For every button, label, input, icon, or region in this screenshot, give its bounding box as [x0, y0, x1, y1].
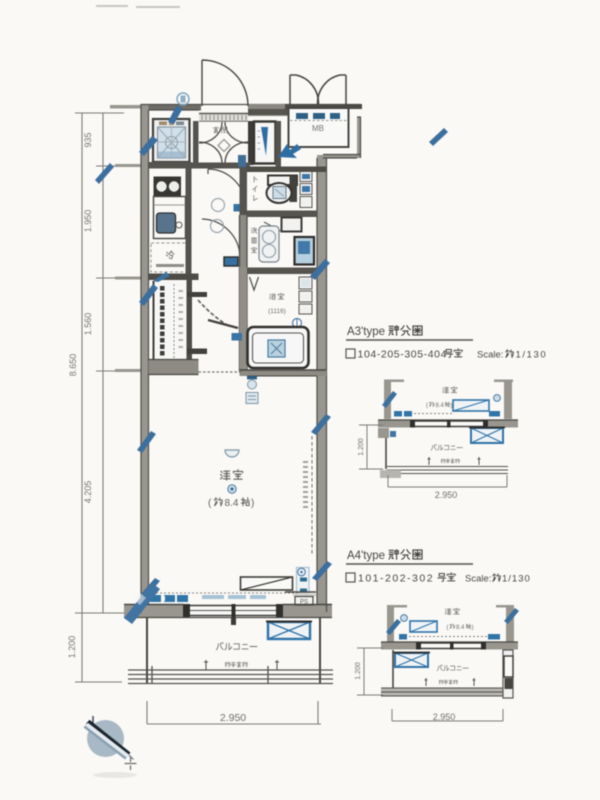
svg-text:935: 935 [83, 132, 93, 147]
svg-text:1.200: 1.200 [355, 662, 362, 680]
svg-text:(: ( [426, 403, 428, 409]
svg-text:4.205: 4.205 [83, 481, 93, 504]
svg-text:1/130: 1/130 [502, 574, 531, 585]
svg-text:Scale:: Scale: [477, 350, 503, 361]
svg-text:(: ( [447, 625, 449, 631]
svg-text:1.560: 1.560 [83, 313, 93, 336]
svg-text:A3'type: A3'type [347, 326, 385, 338]
svg-text:8.4: 8.4 [436, 403, 445, 409]
svg-text:8.4: 8.4 [225, 498, 239, 509]
svg-text:): ) [472, 625, 474, 631]
svg-text:2.950: 2.950 [220, 712, 246, 724]
svg-text:2.950: 2.950 [433, 712, 456, 722]
svg-text:101-202-302: 101-202-302 [358, 573, 434, 585]
svg-text:8.4: 8.4 [456, 625, 465, 631]
svg-text:104-205-305-404: 104-205-305-404 [358, 349, 448, 361]
svg-text:8.650: 8.650 [68, 354, 78, 377]
svg-text:): ) [251, 498, 254, 509]
svg-text:1.950: 1.950 [83, 210, 93, 233]
svg-text:1.200: 1.200 [67, 636, 77, 659]
svg-text:1/130: 1/130 [516, 350, 548, 361]
svg-text:A4'type: A4'type [347, 550, 385, 562]
svg-text:(: ( [208, 498, 212, 509]
svg-text:2.950: 2.950 [435, 490, 458, 500]
svg-text:MB: MB [312, 124, 324, 133]
svg-text:Scale:: Scale: [465, 574, 491, 585]
svg-text:(1116): (1116) [268, 308, 286, 315]
svg-text:1.200: 1.200 [358, 438, 365, 456]
